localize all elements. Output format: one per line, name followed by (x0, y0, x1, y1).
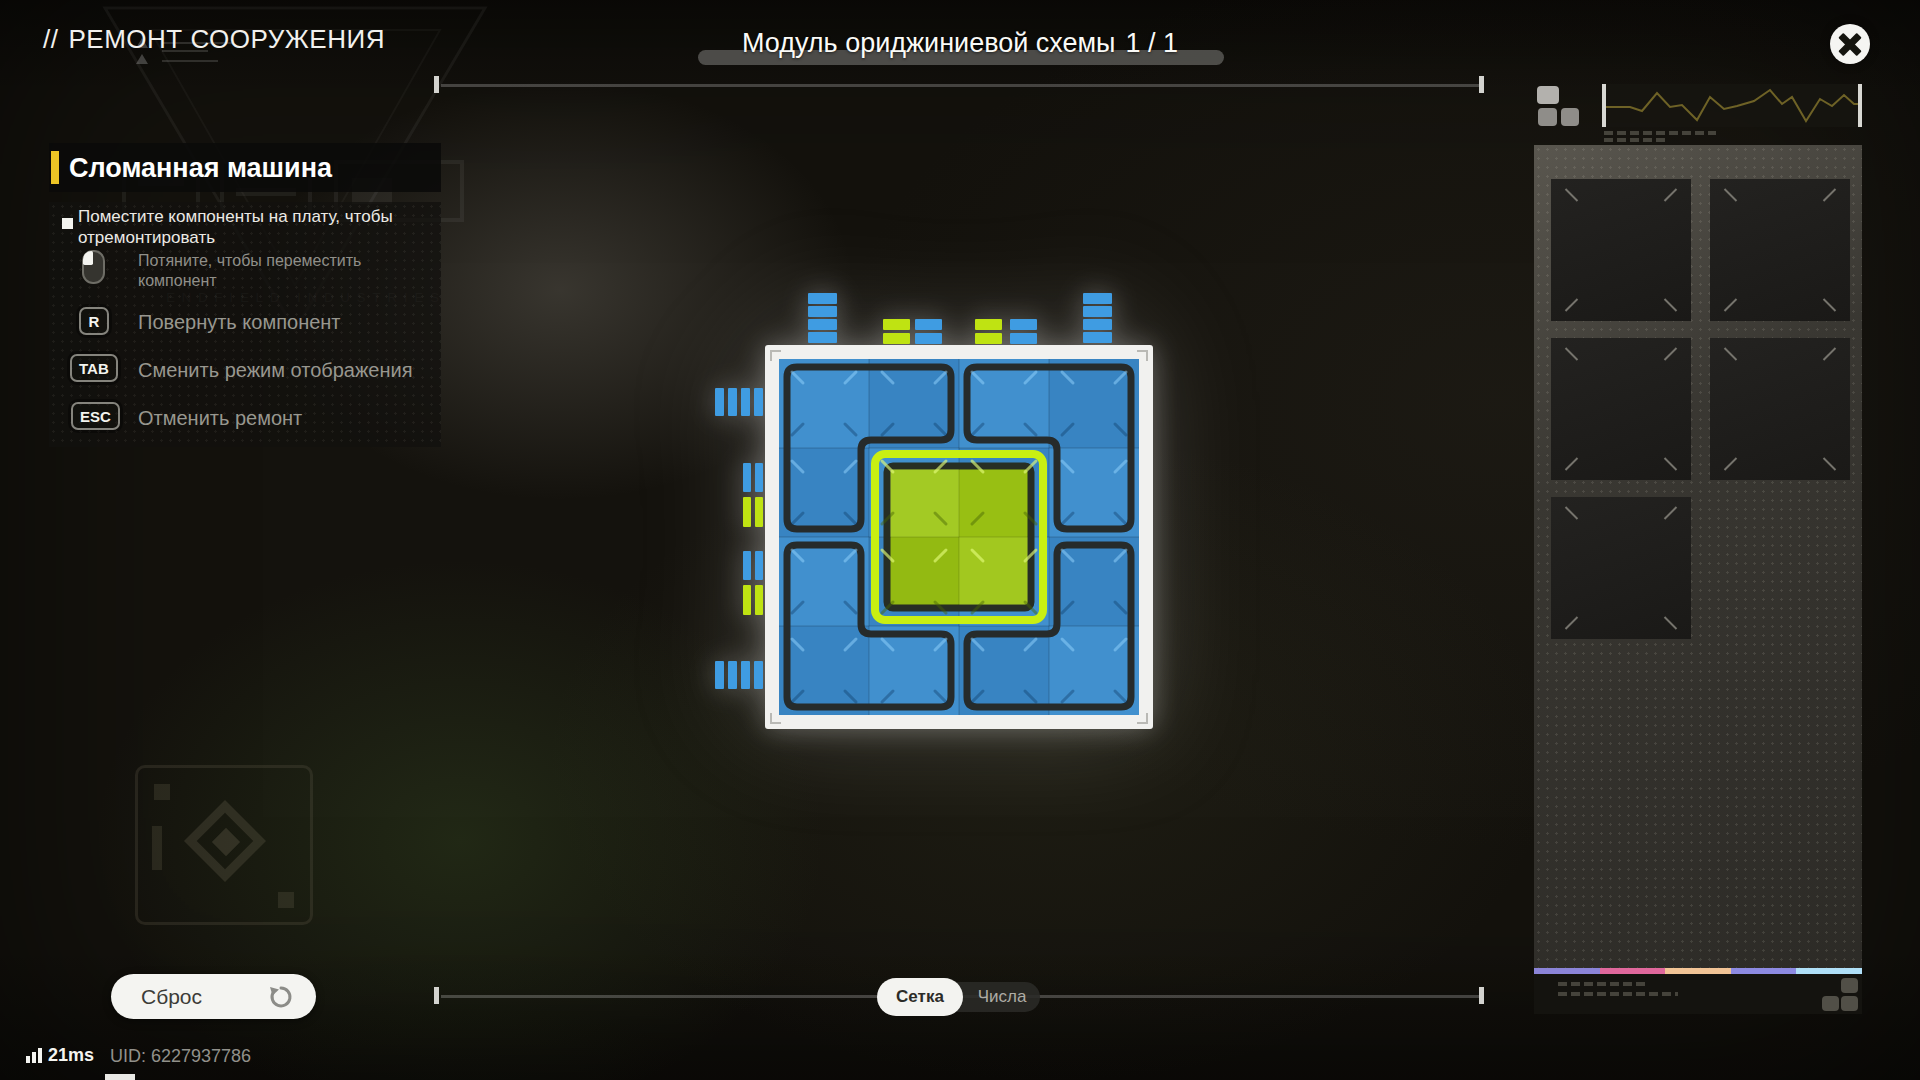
ping-value: 21ms (48, 1045, 94, 1065)
signal-waveform (1602, 84, 1862, 127)
reset-icon (268, 984, 294, 1010)
signal-bars-icon (26, 1056, 30, 1063)
hint-rotate-label: Повернуть компонент (138, 311, 341, 334)
top-divider-cap-right (1479, 76, 1484, 93)
module-count: 1 / 1 (1126, 28, 1179, 58)
view-mode-toggle: Сетка Числа (878, 982, 1040, 1012)
fineprint-line (1604, 131, 1716, 135)
blueprint-watermark (135, 765, 313, 925)
component-slot[interactable] (1710, 179, 1850, 321)
yellow-accent-bar (51, 151, 59, 184)
breadcrumb-prefix: // (43, 24, 58, 54)
page-title: //РЕМОНТ СООРУЖЕНИЯ (43, 24, 385, 55)
objective-text: Поместите компоненты на плату, чтобы отр… (78, 206, 418, 248)
top-divider (441, 84, 1479, 87)
module-title: Модуль ориджиниевой схемы1 / 1 (660, 28, 1260, 59)
top-divider-cap-left (434, 76, 439, 93)
key-esc-badge: ESC (71, 402, 120, 430)
component-slot[interactable] (1551, 179, 1691, 321)
fineprint-line (1604, 138, 1666, 142)
circuit-board[interactable] (700, 285, 1170, 745)
hint-view-label: Сменить режим отображения (138, 359, 413, 382)
bottom-divider-cap-left (434, 987, 439, 1004)
logo-triangle-icon (136, 54, 148, 64)
instructions-panel: Поместите компоненты на плату, чтобы отр… (49, 202, 441, 447)
reset-button[interactable]: Сброс (111, 974, 316, 1019)
toggle-numbers-option[interactable]: Числа (964, 982, 1040, 1012)
component-slot[interactable] (1710, 338, 1850, 480)
tray-footer (1534, 974, 1862, 1014)
hint-drag-label: Потяните, чтобы переместить компонент (138, 251, 388, 291)
bottom-divider-cap-right (1479, 987, 1484, 1004)
ping-indicator: 21ms (26, 1045, 94, 1065)
task-header: Сломанная машина (49, 143, 441, 192)
key-r-badge: R (79, 307, 109, 335)
task-title: Сломанная машина (69, 153, 332, 184)
hint-cancel-label: Отменить ремонт (138, 407, 302, 430)
uid-label: UID: 6227937786 (110, 1046, 251, 1067)
bottom-tick (105, 1074, 135, 1080)
component-tray (1534, 145, 1862, 968)
key-tab-badge: TAB (70, 354, 118, 382)
component-slot[interactable] (1551, 338, 1691, 480)
bullet-icon (62, 218, 73, 229)
component-slot[interactable] (1551, 497, 1691, 639)
close-button[interactable] (1830, 24, 1870, 64)
repair-screen: ENDFIELD INDUSTRIES //РЕМОНТ СООРУЖЕНИЯ … (0, 0, 1920, 1080)
toggle-grid-option[interactable]: Сетка (877, 978, 963, 1016)
components-icon (1537, 86, 1581, 128)
close-icon (1838, 32, 1862, 56)
mouse-left-icon (82, 250, 105, 284)
